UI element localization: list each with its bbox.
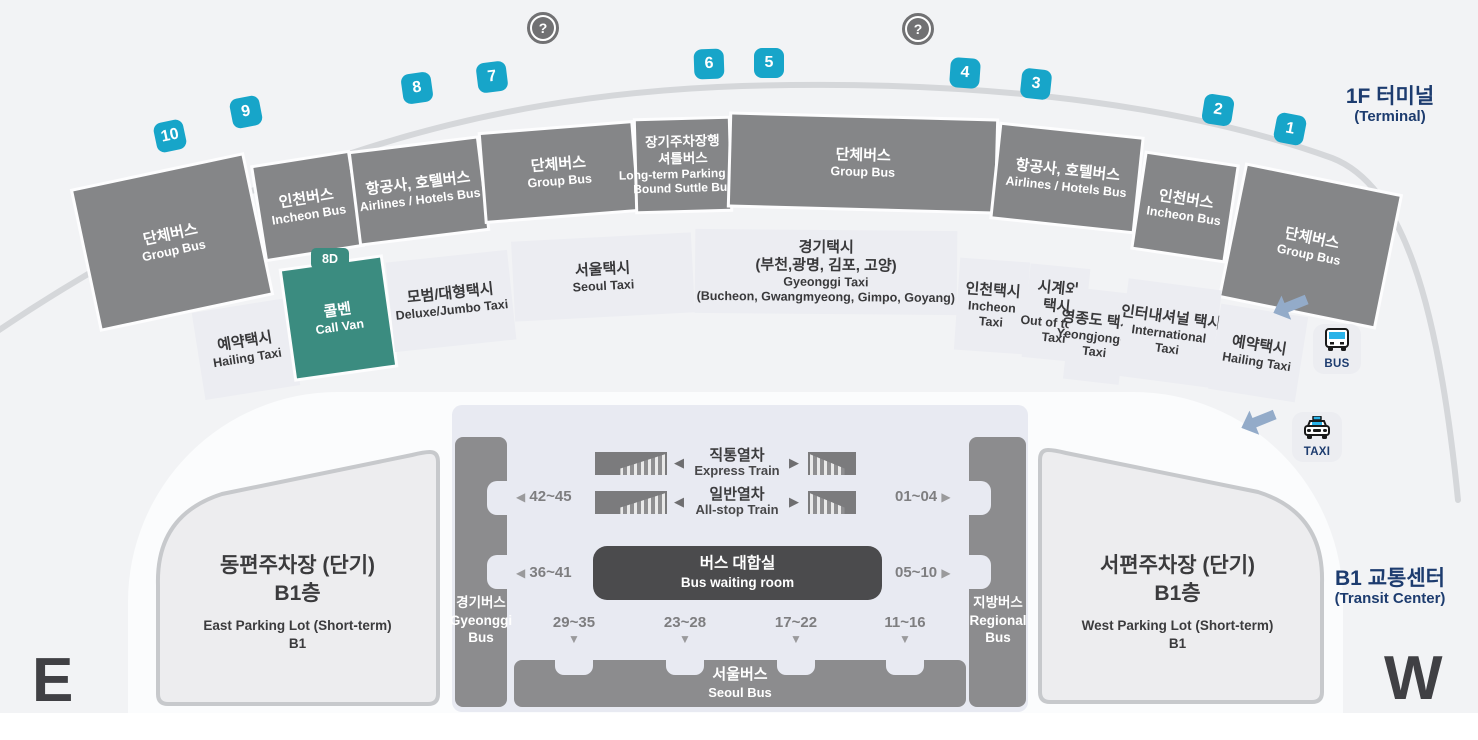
gate-range-01-04: 01~04 ▶: [895, 488, 951, 505]
platform-notch: [666, 660, 704, 675]
help-icon[interactable]: ?: [527, 12, 559, 44]
stop-badge-4: 4: [949, 57, 981, 89]
segment-group-bus-center-east: 단체버스 Group Bus: [730, 115, 996, 212]
segment-gyeonggi-taxi: 경기택시 (부천,광명, 김포, 고양) Gyeonggi Taxi (Buch…: [695, 229, 958, 315]
stop-badge-1: 1: [1272, 111, 1307, 146]
pillar-notch: [965, 481, 991, 515]
segment-group-bus-center-west: 단체버스 Group Bus: [481, 123, 637, 221]
segment-group-bus-east: 단체버스 Group Bus: [1221, 166, 1399, 326]
stop-badge-3: 3: [1020, 68, 1053, 101]
segment-airlines-hotels-bus-west: 항공사, 호텔버스 Airlines / Hotels Bus: [351, 139, 487, 244]
stop-badge-2: 2: [1201, 93, 1235, 127]
east-parking-label: 동편주차장 (단기)B1층 East Parking Lot (Short-te…: [175, 552, 420, 653]
west-parking-label: 서편주차장 (단기)B1층 West Parking Lot (Short-te…: [1055, 552, 1300, 653]
stop-badge-8: 8: [400, 71, 434, 105]
platform-icon: [808, 491, 856, 514]
segment-deluxe-jumbo-taxi: 모범/대형택시 Deluxe/Jumbo Taxi: [386, 250, 517, 352]
platform-notch: [886, 660, 924, 675]
platform-icon: [595, 452, 667, 475]
regional-bus-pillar-label: 지방버스 Regional Bus: [963, 594, 1033, 647]
segment-international-taxi: 인터내셔널 택시 International Taxi: [1116, 278, 1222, 387]
bus-icon: [1323, 328, 1351, 357]
stop-badge-6: 6: [693, 48, 724, 79]
terminal-title: 1F 터미널 (Terminal): [1325, 85, 1455, 125]
compass-east: E: [32, 650, 73, 712]
gate-range-11-16: 11~16: [870, 614, 940, 631]
taxi-icon: [1302, 416, 1332, 445]
transit-center-title: B1 교통센터 (Transit Center): [1325, 567, 1455, 607]
stop-badge-10: 10: [152, 118, 188, 154]
gate-8d-badge: 8D: [311, 248, 349, 269]
pillar-notch: [487, 481, 513, 515]
allstop-train-label: 일반열차 All-stop Train: [687, 486, 787, 518]
bus-stop-marker: BUS: [1313, 324, 1361, 374]
segment-longterm-parking-shuttle: 장기주차장행 셔틀버스 Long-term Parking Lot Bound …: [636, 119, 730, 211]
gate-range-42-45: ◀ 42~45: [516, 488, 572, 505]
gate-range-05-10: 05~10 ▶: [895, 564, 951, 581]
express-train-label: 직통열차 Express Train: [687, 447, 787, 479]
gyeonggi-bus-pillar-label: 경기버스 Gyeonggi Bus: [446, 594, 516, 647]
gate-range-29-35: 29~35: [539, 614, 609, 631]
bottom-strip: [0, 713, 1478, 740]
segment-incheon-taxi: 인천택시 Incheon Taxi: [954, 258, 1030, 355]
right-arrow-icon: ▶: [789, 494, 799, 510]
gate-range-23-28: 23~28: [650, 614, 720, 631]
segment-incheon-bus-west: 인천버스 Incheon Bus: [253, 153, 361, 259]
stop-badge-9: 9: [228, 94, 263, 129]
platform-icon: [808, 452, 856, 475]
taxi-stand-marker: TAXI: [1292, 412, 1342, 462]
pillar-notch: [487, 555, 513, 589]
platform-notch: [555, 660, 593, 675]
gate-range-36-41: ◀ 36~41: [516, 564, 572, 581]
segment-airlines-hotels-bus-east: 항공사, 호텔버스 Airlines / Hotels Bus: [993, 125, 1142, 231]
left-arrow-icon: ◀: [674, 455, 684, 471]
segment-group-bus-west: 단체버스 Group Bus: [73, 156, 270, 329]
bus-waiting-room: 버스 대합실 Bus waiting room: [593, 546, 882, 600]
down-arrow-icon: ▼: [761, 633, 831, 645]
segment-hailing-taxi-west: 예약택시 Hailing Taxi: [192, 298, 301, 400]
platform-icon: [595, 491, 667, 514]
pillar-notch: [965, 555, 991, 589]
compass-west: W: [1384, 648, 1443, 710]
gate-range-17-22: 17~22: [761, 614, 831, 631]
segment-incheon-bus-east: 인천버스 Incheon Bus: [1134, 154, 1237, 260]
down-arrow-icon: ▼: [650, 633, 720, 645]
platform-notch: [777, 660, 815, 675]
stop-badge-5: 5: [754, 48, 784, 78]
segment-seoul-taxi: 서울택시 Seoul Taxi: [511, 232, 695, 321]
help-icon[interactable]: ?: [902, 13, 934, 45]
terminal-transport-map: 동편주차장 (단기)B1층 East Parking Lot (Short-te…: [0, 0, 1478, 740]
left-arrow-icon: ◀: [674, 494, 684, 510]
down-arrow-icon: ▼: [870, 633, 940, 645]
down-arrow-icon: ▼: [539, 633, 609, 645]
right-arrow-icon: ▶: [789, 455, 799, 471]
stop-badge-7: 7: [475, 60, 508, 93]
segment-call-van: 콜벤 Call Van: [282, 258, 395, 379]
